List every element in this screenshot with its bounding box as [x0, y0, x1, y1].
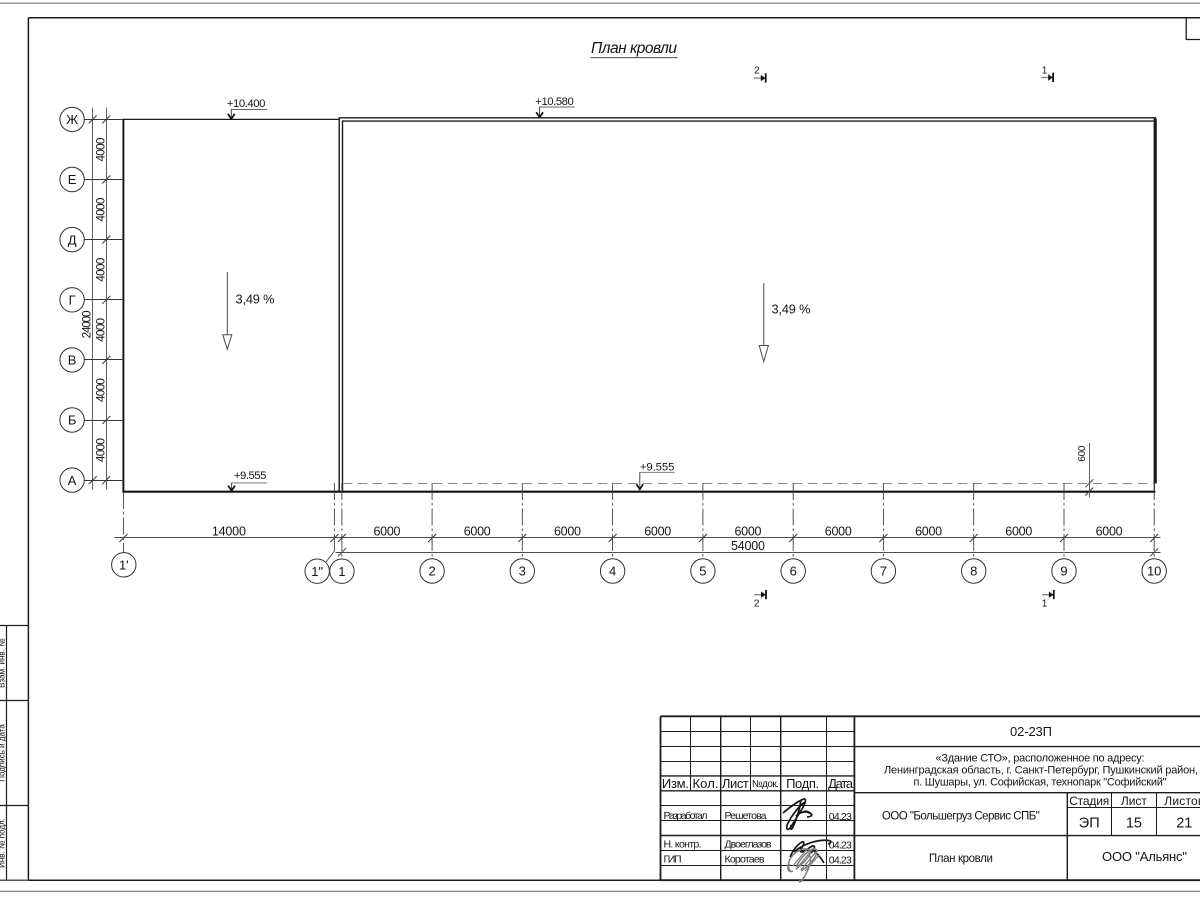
svg-text:+9.555: +9.555	[640, 461, 675, 473]
svg-text:10: 10	[1147, 564, 1161, 579]
svg-text:2: 2	[754, 65, 760, 76]
svg-text:ЭП: ЭП	[1079, 816, 1100, 832]
svg-text:54000: 54000	[731, 539, 765, 553]
svg-text:1': 1'	[119, 558, 129, 573]
svg-text:24000: 24000	[80, 310, 94, 338]
svg-text:21: 21	[1176, 816, 1192, 832]
svg-text:2: 2	[754, 599, 760, 610]
svg-text:Кол.: Кол.	[693, 776, 719, 791]
svg-text:7: 7	[880, 564, 887, 579]
svg-text:Коротаев: Коротаев	[725, 854, 765, 866]
svg-text:Лист: Лист	[722, 776, 749, 791]
svg-text:«Здание СТО», расположенное по: «Здание СТО», расположенное по адресу:	[936, 753, 1145, 765]
svg-text:Ленинградская область, г. Санк: Ленинградская область, г. Санкт-Петербур…	[884, 765, 1198, 777]
svg-text:Изм.: Изм.	[662, 776, 689, 791]
svg-text:Г: Г	[69, 293, 76, 308]
svg-text:ГИП: ГИП	[664, 854, 682, 866]
svg-text:6000: 6000	[464, 525, 491, 539]
svg-text:1: 1	[338, 564, 345, 579]
svg-text:4000: 4000	[94, 257, 108, 281]
svg-text:4000: 4000	[94, 438, 108, 462]
svg-text:3: 3	[519, 564, 526, 579]
svg-text:6000: 6000	[374, 525, 401, 539]
svg-text:+10.400: +10.400	[227, 98, 266, 110]
svg-text:9: 9	[1060, 564, 1067, 579]
svg-text:п. Шушары, ул. Софийская, техн: п. Шушары, ул. Софийская, технопарк "Соф…	[914, 777, 1167, 789]
svg-text:4000: 4000	[94, 317, 108, 341]
svg-text:4000: 4000	[94, 378, 108, 402]
svg-text:ООО "Большегруз Сервис СПБ": ООО "Большегруз Сервис СПБ"	[882, 810, 1040, 822]
svg-text:3,49 %: 3,49 %	[236, 292, 275, 307]
svg-text:ООО "Альянс": ООО "Альянс"	[1102, 849, 1187, 864]
svg-text:4000: 4000	[94, 137, 108, 161]
svg-text:1: 1	[1042, 599, 1048, 610]
svg-text:1": 1"	[311, 564, 323, 579]
svg-text:04.23: 04.23	[829, 855, 852, 867]
svg-text:Листов: Листов	[1164, 794, 1200, 808]
svg-text:№док.: №док.	[752, 779, 779, 790]
svg-text:+10.580: +10.580	[535, 96, 574, 108]
svg-text:Лист: Лист	[1121, 794, 1148, 808]
svg-text:Д: Д	[68, 232, 77, 247]
svg-text:8: 8	[970, 564, 977, 579]
svg-text:4: 4	[609, 564, 616, 579]
svg-text:6000: 6000	[554, 525, 581, 539]
svg-text:6000: 6000	[915, 525, 942, 539]
svg-text:15: 15	[1126, 816, 1142, 832]
svg-text:В: В	[68, 353, 77, 368]
svg-text:6000: 6000	[735, 525, 762, 539]
svg-text:1: 1	[1042, 65, 1048, 76]
svg-text:5: 5	[699, 564, 706, 579]
svg-text:6000: 6000	[1005, 525, 1032, 539]
svg-text:3,49 %: 3,49 %	[772, 302, 811, 317]
svg-text:6: 6	[790, 564, 797, 579]
svg-text:02-23П: 02-23П	[1010, 724, 1052, 739]
svg-text:6000: 6000	[1096, 525, 1123, 539]
svg-text:2: 2	[428, 564, 435, 579]
svg-text:04.23: 04.23	[829, 811, 852, 823]
svg-text:Стадия: Стадия	[1069, 794, 1109, 808]
svg-text:План кровли: План кровли	[591, 40, 677, 57]
svg-text:Взам. инв. №: Взам. инв. №	[0, 638, 7, 688]
svg-text:6000: 6000	[825, 525, 852, 539]
svg-text:Разработал: Разработал	[664, 810, 708, 822]
svg-text:А: А	[68, 473, 77, 488]
svg-text:Подпись и дата: Подпись и дата	[0, 724, 7, 782]
svg-text:Решетова: Решетова	[725, 810, 767, 822]
svg-text:600: 600	[1077, 445, 1088, 461]
svg-text:Н. контр.: Н. контр.	[664, 839, 702, 851]
svg-text:6000: 6000	[644, 525, 671, 539]
svg-text:4000: 4000	[94, 197, 108, 221]
svg-text:Дата: Дата	[828, 776, 854, 791]
svg-text:Ж: Ж	[66, 112, 78, 127]
svg-text:Б: Б	[68, 413, 77, 428]
svg-text:+9.555: +9.555	[234, 470, 267, 482]
svg-text:Двоеглазов: Двоеглазов	[725, 839, 772, 851]
svg-text:04.23: 04.23	[829, 840, 852, 852]
svg-text:План кровли: План кровли	[929, 853, 993, 865]
svg-text:Подп.: Подп.	[786, 776, 819, 791]
svg-text:Е: Е	[68, 172, 77, 187]
svg-text:14000: 14000	[212, 525, 246, 539]
svg-text:Инв. № подл.: Инв. № подл.	[0, 818, 7, 868]
